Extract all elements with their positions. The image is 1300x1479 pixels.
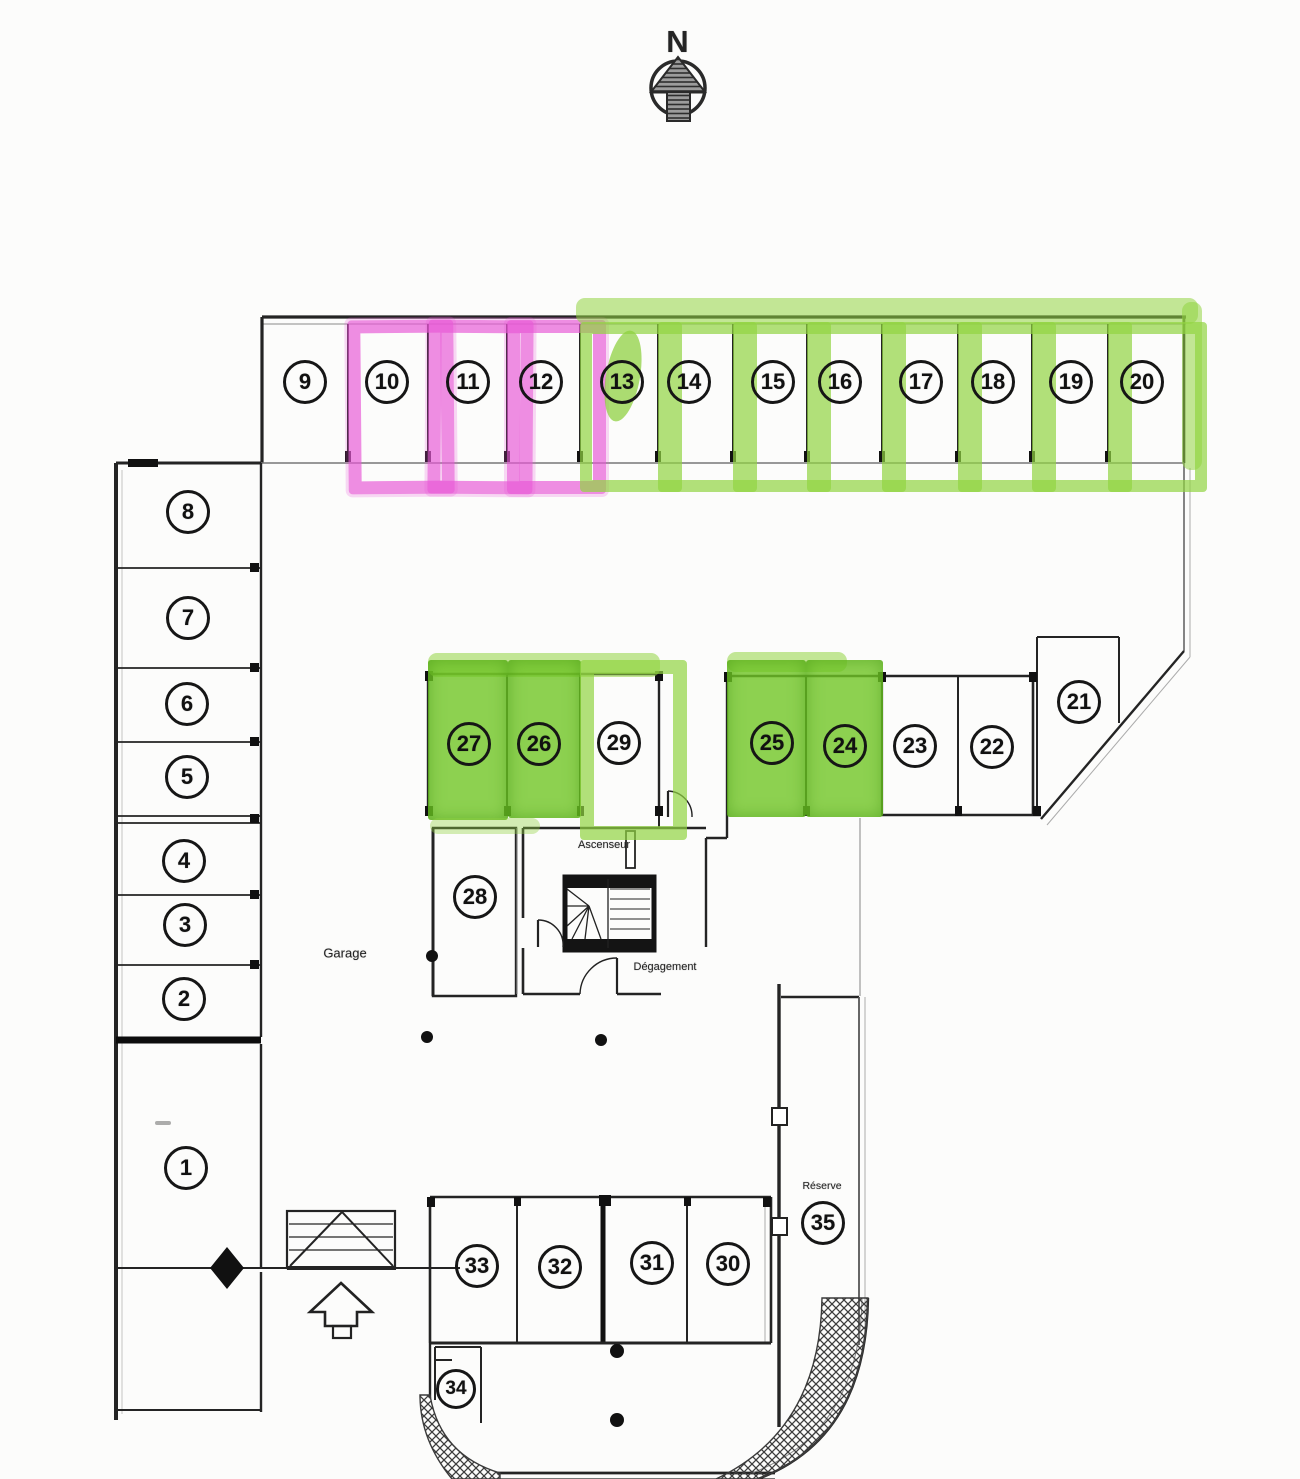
space-badge-24: 24 <box>823 724 867 768</box>
space-badge-26: 26 <box>517 722 561 766</box>
space-badge-19: 19 <box>1049 360 1093 404</box>
space-badge-33: 33 <box>455 1244 499 1288</box>
space-badge-8: 8 <box>166 490 210 534</box>
space-badge-27: 27 <box>447 722 491 766</box>
space-badge-28: 28 <box>453 875 497 919</box>
clearance-label: Dégagement <box>634 961 697 973</box>
space-badge-34: 34 <box>436 1369 476 1409</box>
space-badge-10: 10 <box>365 360 409 404</box>
space-badge-22: 22 <box>970 725 1014 769</box>
space-badge-29: 29 <box>597 721 641 765</box>
space-badge-6: 6 <box>165 682 209 726</box>
space-badge-13: 13 <box>600 360 644 404</box>
space-badge-9: 9 <box>283 360 327 404</box>
garage-door-ramp-icon <box>287 1211 396 1268</box>
elevator-label: Ascenseur <box>578 839 630 851</box>
parking-floorplan: 1 2 3 4 5 6 7 8 9 10 11 12 13 14 15 16 1… <box>0 0 1300 1479</box>
space-badge-32: 32 <box>538 1245 582 1289</box>
space-badge-21: 21 <box>1057 680 1101 724</box>
space-badge-31: 31 <box>630 1241 674 1285</box>
space-badge-12: 12 <box>519 360 563 404</box>
space-badge-4: 4 <box>162 839 206 883</box>
space-badge-3: 3 <box>163 903 207 947</box>
space-badge-15: 15 <box>751 360 795 404</box>
stairwell-icon <box>565 877 654 950</box>
north-label: N <box>666 24 689 60</box>
space-badge-25: 25 <box>750 721 794 765</box>
diamond-wall-marker <box>210 1247 244 1289</box>
space-badge-14: 14 <box>667 360 711 404</box>
space-badge-23: 23 <box>893 724 937 768</box>
garage-label: Garage <box>323 946 366 961</box>
entrance-arrow-icon <box>310 1283 372 1338</box>
space-badge-11: 11 <box>446 360 490 404</box>
space-badge-16: 16 <box>818 360 862 404</box>
space-badge-17: 17 <box>899 360 943 404</box>
space-badge-18: 18 <box>971 360 1015 404</box>
space-badge-1: 1 <box>164 1146 208 1190</box>
space-badge-30: 30 <box>706 1242 750 1286</box>
hatched-wall-bands <box>420 1298 868 1479</box>
space-badge-35: 35 <box>801 1201 845 1245</box>
reserve-label: Réserve <box>802 1180 841 1192</box>
space-badge-5: 5 <box>165 755 209 799</box>
space-badge-20: 20 <box>1120 360 1164 404</box>
north-compass-icon <box>650 57 706 121</box>
tiny-annotation-mark <box>155 1121 171 1125</box>
space-badge-2: 2 <box>162 977 206 1021</box>
space-badge-7: 7 <box>166 596 210 640</box>
structural-columns <box>421 950 624 1427</box>
